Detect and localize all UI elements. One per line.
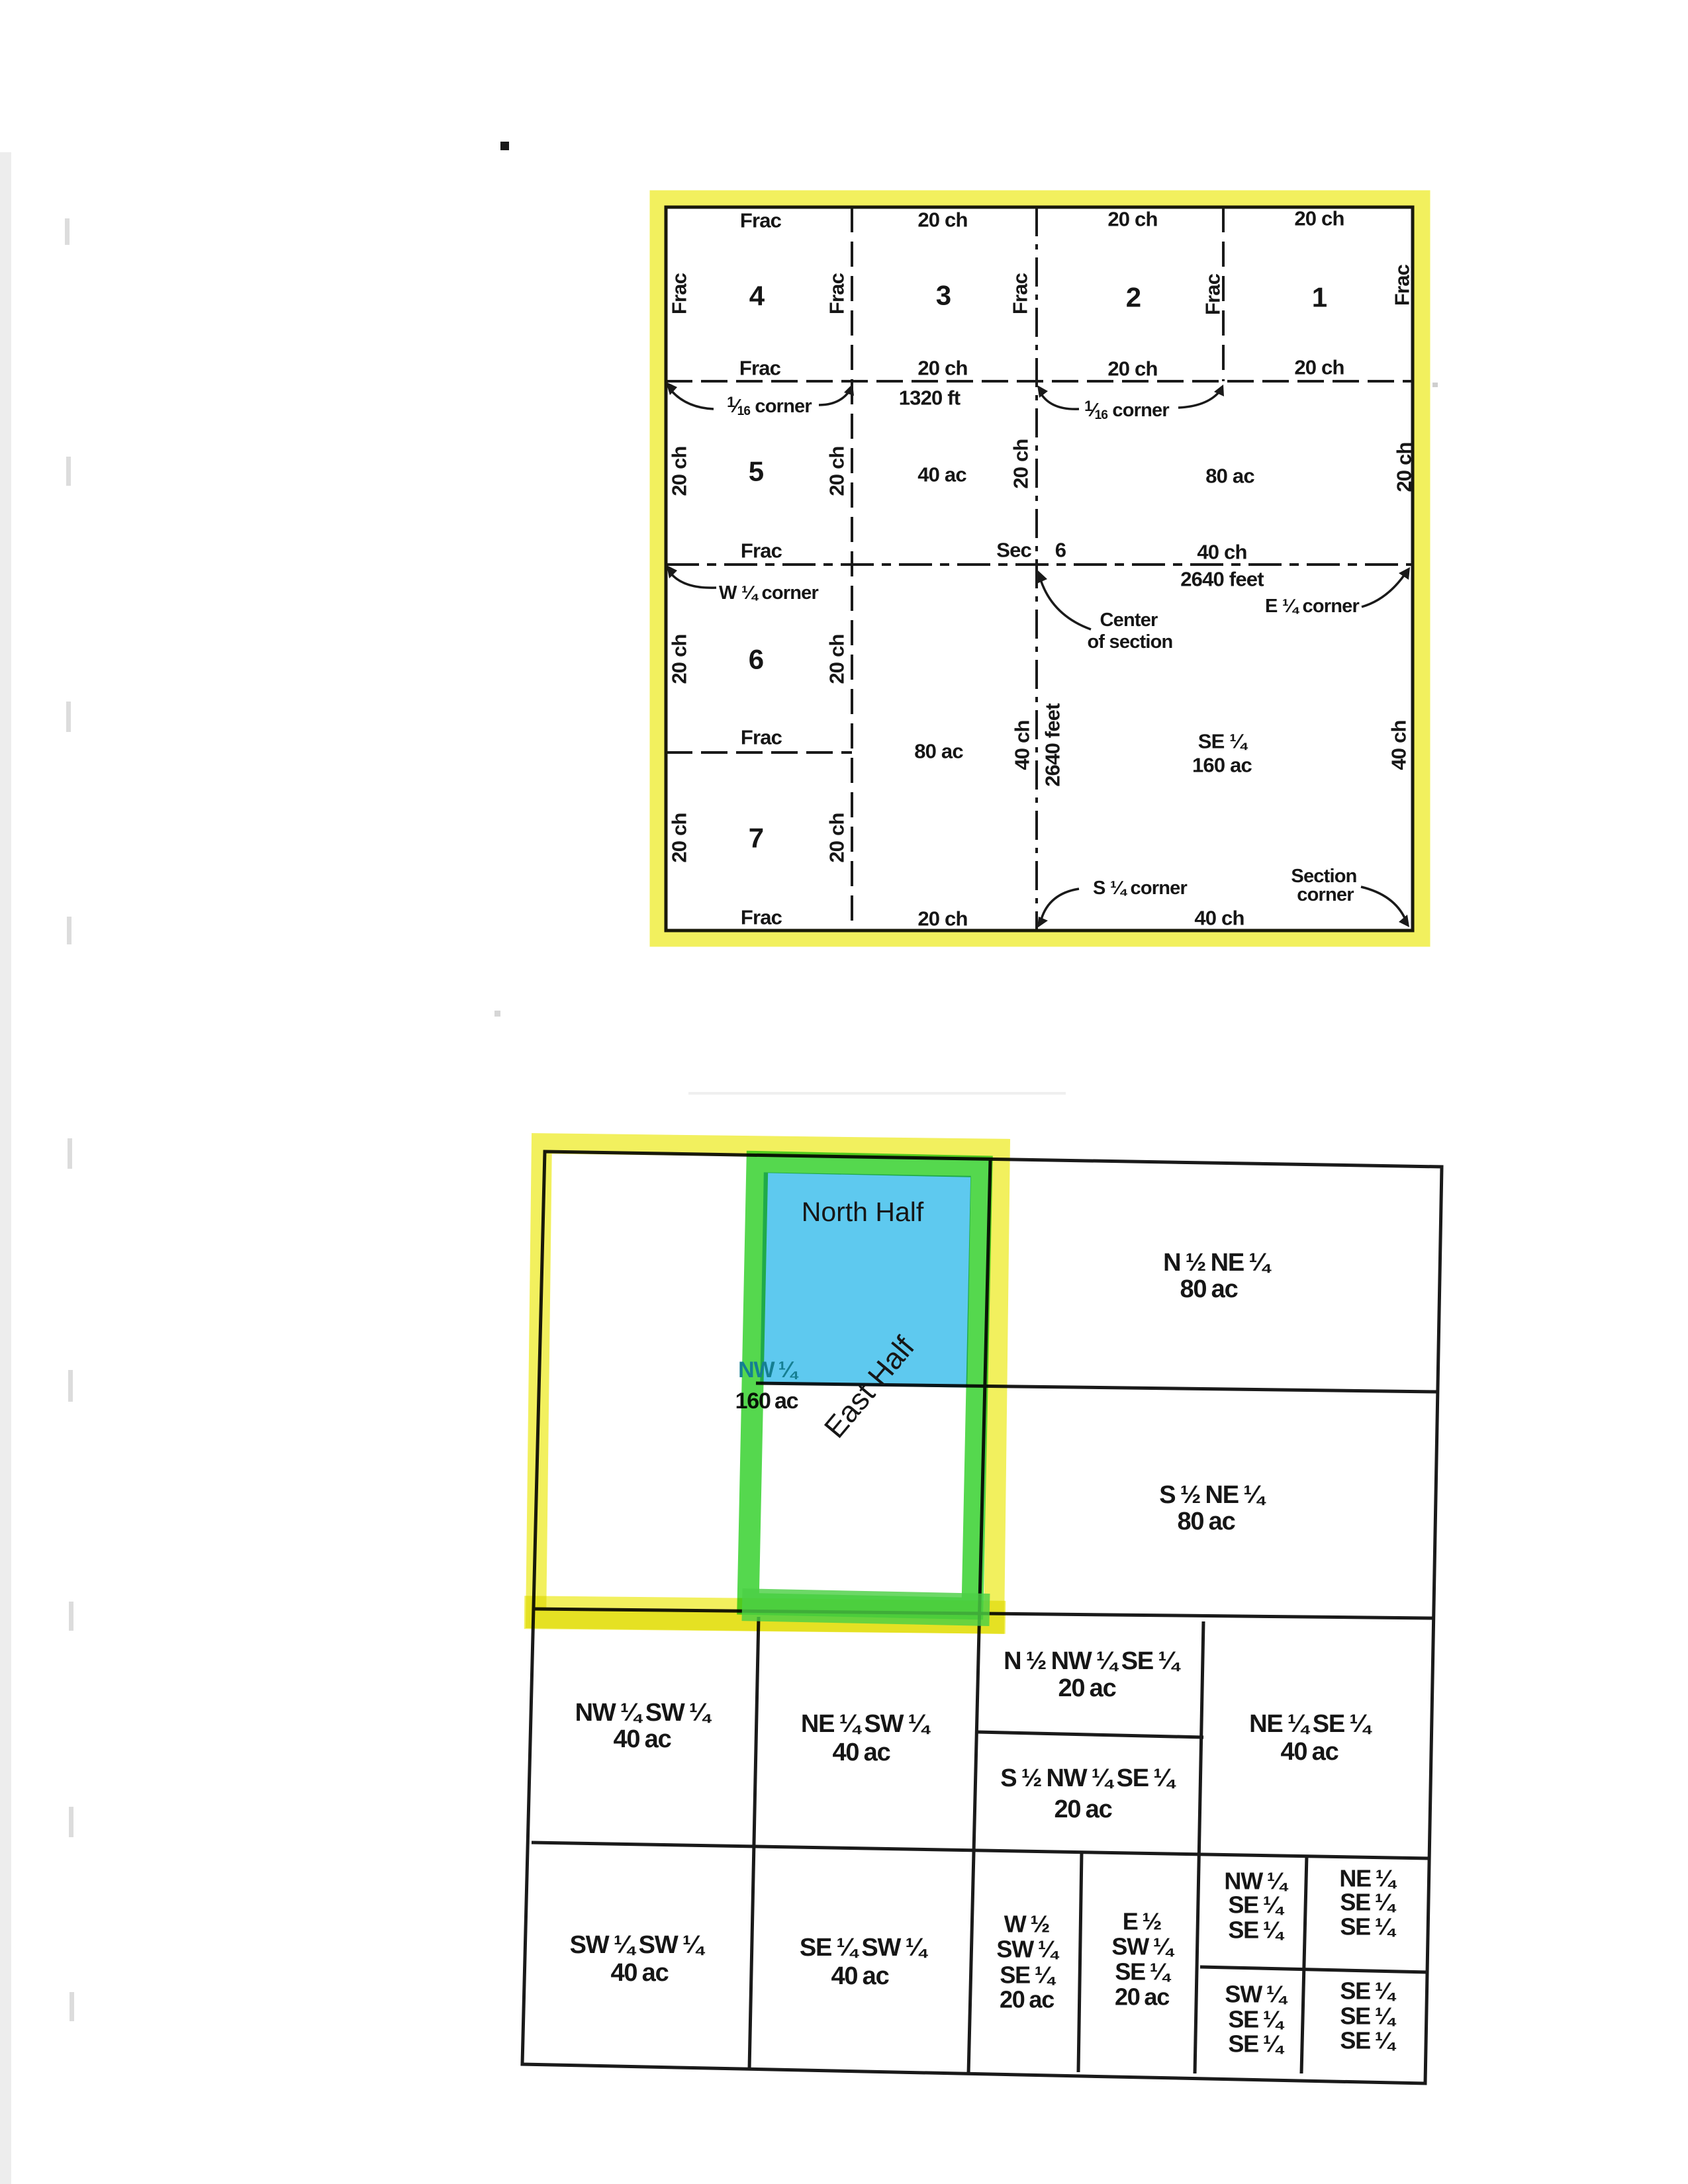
svg-text:1: 1 [1312, 282, 1327, 313]
svg-text:Frac: Frac [739, 357, 781, 380]
svg-text:20 ch: 20 ch [825, 446, 849, 496]
svg-text:80 ac: 80 ac [1180, 1275, 1238, 1303]
svg-text:Frac: Frac [1009, 273, 1032, 314]
svg-text:40 ac: 40 ac [917, 463, 966, 486]
svg-text:20 ch: 20 ch [668, 446, 691, 496]
svg-text:40 ac: 40 ac [831, 1962, 889, 1990]
svg-text:1⁄16 corner: 1⁄16 corner [727, 394, 812, 418]
svg-text:Frac: Frac [668, 273, 691, 314]
svg-text:Frac: Frac [741, 906, 782, 929]
svg-text:20 ch: 20 ch [1009, 439, 1033, 488]
svg-text:40 ac: 40 ac [1280, 1738, 1338, 1766]
svg-text:N ½ NW ¼ SE ¼: N ½ NW ¼ SE ¼ [1004, 1647, 1181, 1675]
svg-text:40 ch: 40 ch [1011, 720, 1034, 770]
svg-text:Frac: Frac [1201, 273, 1225, 315]
svg-text:20 ch: 20 ch [1107, 208, 1157, 231]
svg-text:80 ac: 80 ac [1177, 1508, 1235, 1535]
svg-text:NW ¼: NW ¼ [1224, 1868, 1288, 1895]
svg-text:20 ch: 20 ch [917, 907, 967, 931]
svg-text:2640 feet: 2640 feet [1041, 704, 1064, 787]
svg-text:6: 6 [1055, 539, 1066, 562]
svg-text:40 ac: 40 ac [613, 1725, 671, 1753]
svg-text:40 ch: 40 ch [1194, 907, 1244, 930]
svg-text:20 ac: 20 ac [1058, 1674, 1116, 1702]
svg-text:20 ch: 20 ch [1294, 356, 1344, 379]
svg-text:4: 4 [749, 281, 765, 312]
svg-text:SE ¼: SE ¼ [1340, 2003, 1396, 2030]
svg-text:5: 5 [749, 456, 764, 487]
svg-text:3: 3 [936, 280, 951, 311]
svg-text:S ¼ corner: S ¼ corner [1093, 878, 1187, 899]
svg-text:Frac: Frac [741, 726, 782, 749]
svg-text:North Half: North Half [802, 1197, 924, 1227]
svg-text:SE ¼: SE ¼ [1340, 1913, 1396, 1940]
svg-text:SE ¼: SE ¼ [1228, 2006, 1284, 2033]
svg-text:7: 7 [749, 823, 764, 854]
svg-text:NW ¼ SW ¼: NW ¼ SW ¼ [575, 1699, 712, 1727]
svg-text:2640 feet: 2640 feet [1180, 568, 1264, 591]
svg-text:20 ch: 20 ch [668, 813, 691, 862]
svg-text:20 ac: 20 ac [1000, 1986, 1054, 2013]
svg-text:S ½ NW ¼ SE ¼: S ½ NW ¼ SE ¼ [1000, 1764, 1176, 1792]
svg-text:SE ¼: SE ¼ [1115, 1958, 1171, 1985]
svg-text:20 ch: 20 ch [825, 813, 849, 862]
svg-text:SW ¼: SW ¼ [1225, 1981, 1288, 2008]
svg-text:SE ¼: SE ¼ [1340, 2027, 1396, 2054]
svg-text:SE ¼ SW ¼: SE ¼ SW ¼ [800, 1934, 929, 1962]
svg-text:SE ¼: SE ¼ [1228, 1891, 1284, 1919]
svg-text:SE ¼: SE ¼ [1198, 730, 1248, 753]
svg-text:40 ch: 40 ch [1197, 541, 1246, 564]
svg-text:20 ch: 20 ch [1107, 357, 1157, 381]
svg-text:40 ac: 40 ac [610, 1959, 669, 1987]
svg-text:80 ac: 80 ac [914, 740, 963, 763]
svg-text:20 ac: 20 ac [1054, 1796, 1112, 1823]
svg-text:6: 6 [749, 644, 764, 675]
svg-text:80 ac: 80 ac [1205, 465, 1254, 488]
svg-text:NE ¼: NE ¼ [1339, 1865, 1397, 1892]
svg-text:20 ch: 20 ch [1393, 442, 1416, 492]
svg-text:40 ac: 40 ac [832, 1739, 890, 1766]
svg-text:E ½: E ½ [1123, 1908, 1162, 1935]
svg-text:SE ¼: SE ¼ [1000, 1962, 1056, 1989]
svg-text:of section: of section [1088, 631, 1173, 653]
svg-text:2: 2 [1126, 282, 1141, 313]
svg-text:20 ch: 20 ch [668, 634, 691, 684]
svg-text:corner: corner [1297, 884, 1354, 905]
svg-text:20 ch: 20 ch [917, 357, 967, 380]
svg-text:NE ¼ SW ¼: NE ¼ SW ¼ [801, 1710, 931, 1738]
svg-text:Frac: Frac [825, 273, 849, 314]
svg-text:20 ac: 20 ac [1115, 1983, 1169, 2011]
svg-text:20 ch: 20 ch [825, 634, 849, 684]
svg-text:Sec: Sec [996, 539, 1031, 562]
svg-text:W ½: W ½ [1004, 1911, 1050, 1938]
svg-text:1⁄16 corner: 1⁄16 corner [1084, 398, 1169, 422]
svg-text:40 ch: 40 ch [1387, 720, 1411, 770]
svg-text:SE ¼: SE ¼ [1228, 2030, 1284, 2058]
svg-text:1320 ft: 1320 ft [899, 387, 961, 410]
svg-text:SW ¼: SW ¼ [1111, 1933, 1174, 1960]
svg-text:Frac: Frac [740, 209, 782, 232]
svg-text:Frac: Frac [1391, 264, 1414, 306]
svg-text:Frac: Frac [741, 539, 782, 563]
svg-text:SE ¼: SE ¼ [1340, 1889, 1396, 1916]
svg-text:N ½ NE ¼: N ½ NE ¼ [1163, 1249, 1272, 1277]
svg-text:NW ¼: NW ¼ [738, 1357, 798, 1383]
svg-text:160 ac: 160 ac [1192, 754, 1252, 777]
svg-text:SW ¼ SW ¼: SW ¼ SW ¼ [570, 1931, 706, 1959]
svg-text:E ¼ corner: E ¼ corner [1265, 596, 1359, 617]
svg-text:W ¼ corner: W ¼ corner [719, 582, 818, 604]
svg-text:SE ¼: SE ¼ [1228, 1917, 1284, 1944]
svg-text:SE ¼: SE ¼ [1340, 1978, 1396, 2005]
svg-text:Center: Center [1100, 610, 1158, 631]
svg-text:20 ch: 20 ch [1294, 207, 1344, 230]
svg-text:SW ¼: SW ¼ [996, 1936, 1059, 1963]
svg-text:20 ch: 20 ch [917, 208, 967, 232]
svg-text:S ½ NE ¼: S ½ NE ¼ [1159, 1481, 1266, 1509]
svg-text:NE ¼ SE ¼: NE ¼ SE ¼ [1249, 1710, 1372, 1738]
